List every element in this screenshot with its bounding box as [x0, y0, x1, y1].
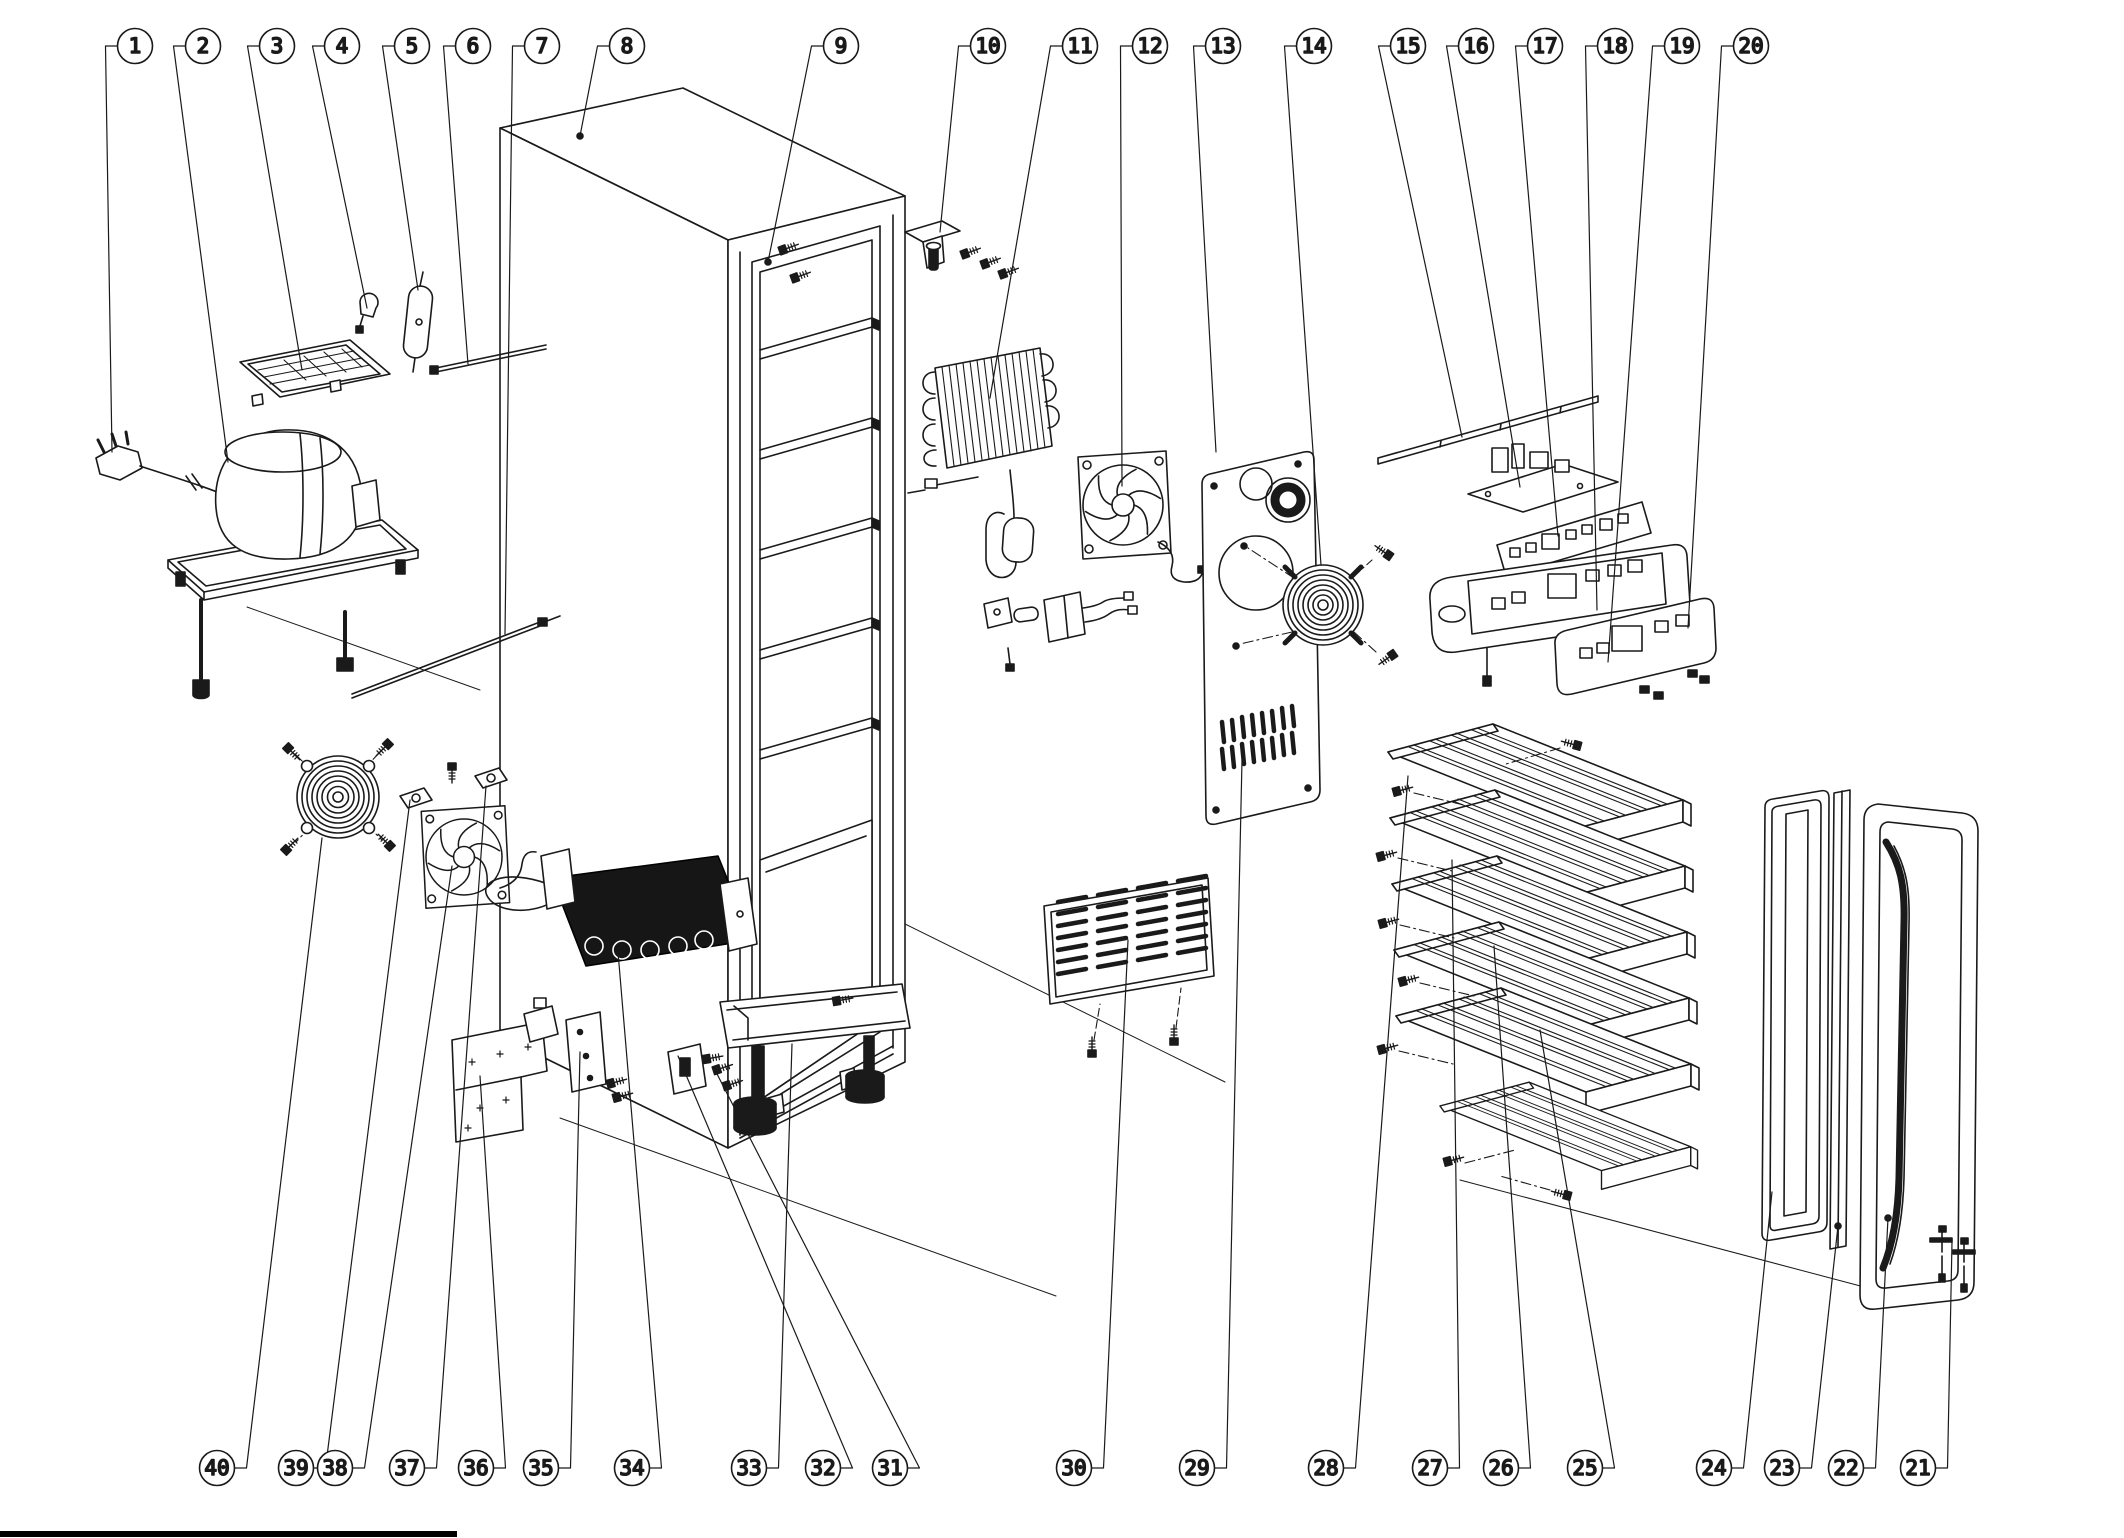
svg-text:34: 34 [619, 1456, 644, 1480]
exploded-parts-diagram: 1234567891011121314151617181920403938373… [0, 0, 2124, 1538]
front-fan-grille [281, 739, 395, 855]
door-gasket [1762, 791, 1829, 1241]
svg-text:23: 23 [1769, 1456, 1794, 1480]
svg-text:31: 31 [877, 1456, 902, 1480]
callout-5: 5 [383, 29, 430, 291]
svg-text:7: 7 [536, 34, 549, 58]
door-hinge-top [905, 221, 1020, 279]
callout-24: 24 [1697, 1192, 1773, 1486]
svg-text:17: 17 [1532, 34, 1557, 58]
callout-39: 39 [279, 800, 411, 1486]
callout-40: 40 [200, 838, 323, 1486]
svg-text:22: 22 [1833, 1456, 1858, 1480]
pipe-clamp [356, 293, 378, 333]
svg-text:16: 16 [1463, 34, 1488, 58]
svg-text:9: 9 [835, 34, 848, 58]
svg-text:14: 14 [1301, 34, 1326, 58]
svg-text:35: 35 [528, 1456, 553, 1480]
callout-4: 4 [313, 29, 368, 309]
svg-text:21: 21 [1905, 1456, 1930, 1480]
svg-text:27: 27 [1417, 1456, 1442, 1480]
door-frame [1830, 790, 1850, 1249]
svg-text:30: 30 [1061, 1456, 1086, 1480]
callout-20: 20 [1688, 29, 1769, 629]
svg-text:12: 12 [1137, 34, 1162, 58]
svg-text:11: 11 [1067, 34, 1092, 58]
svg-text:10: 10 [975, 34, 1000, 58]
svg-text:18: 18 [1602, 34, 1627, 58]
svg-text:28: 28 [1313, 1456, 1338, 1480]
thermostat-assembly [984, 592, 1137, 671]
callout-1: 1 [106, 29, 153, 453]
drip-tray [240, 340, 390, 406]
power-board [1468, 444, 1618, 512]
callout-13: 13 [1194, 29, 1241, 453]
callout-10: 10 [940, 29, 1006, 233]
svg-text:33: 33 [736, 1456, 761, 1480]
wine-shelves [1376, 724, 1699, 1200]
svg-text:19: 19 [1669, 34, 1694, 58]
door [1860, 804, 1978, 1309]
svg-text:37: 37 [394, 1456, 419, 1480]
svg-text:4: 4 [336, 34, 349, 58]
svg-text:40: 40 [204, 1456, 229, 1480]
condenser-fan-upper [1078, 451, 1206, 582]
callout-35: 35 [524, 1052, 581, 1486]
callout-23: 23 [1765, 1226, 1839, 1486]
control-strip [1378, 396, 1598, 464]
svg-text:36: 36 [463, 1456, 488, 1480]
svg-text:20: 20 [1738, 34, 1763, 58]
svg-text:29: 29 [1184, 1456, 1209, 1480]
compressor [168, 430, 418, 699]
svg-text:8: 8 [621, 34, 634, 58]
callouts: 1234567891011121314151617181920403938373… [106, 29, 1953, 1486]
callout-38: 38 [318, 866, 453, 1486]
svg-text:2: 2 [197, 34, 210, 58]
evaporator [908, 348, 1059, 578]
callout-28: 28 [1309, 776, 1409, 1486]
svg-text:5: 5 [406, 34, 419, 58]
svg-text:13: 13 [1210, 34, 1235, 58]
svg-text:26: 26 [1488, 1456, 1513, 1480]
callout-11: 11 [990, 29, 1098, 399]
svg-text:15: 15 [1395, 34, 1420, 58]
callout-30: 30 [1057, 940, 1129, 1486]
callout-29: 29 [1180, 760, 1243, 1486]
callout-6: 6 [444, 29, 491, 365]
svg-text:1: 1 [129, 34, 142, 58]
callout-15: 15 [1379, 29, 1463, 438]
page-edge-line [0, 1531, 457, 1537]
svg-text:25: 25 [1572, 1456, 1597, 1480]
svg-text:38: 38 [322, 1456, 347, 1480]
fan-clamps [400, 768, 507, 808]
svg-text:24: 24 [1701, 1456, 1726, 1480]
svg-text:3: 3 [271, 34, 284, 58]
callout-2: 2 [174, 29, 229, 463]
callout-12: 12 [1121, 29, 1168, 487]
svg-text:32: 32 [810, 1456, 835, 1480]
svg-text:39: 39 [283, 1456, 308, 1480]
vent-grille [1044, 876, 1214, 1057]
callout-3: 3 [248, 29, 303, 371]
svg-text:6: 6 [467, 34, 480, 58]
